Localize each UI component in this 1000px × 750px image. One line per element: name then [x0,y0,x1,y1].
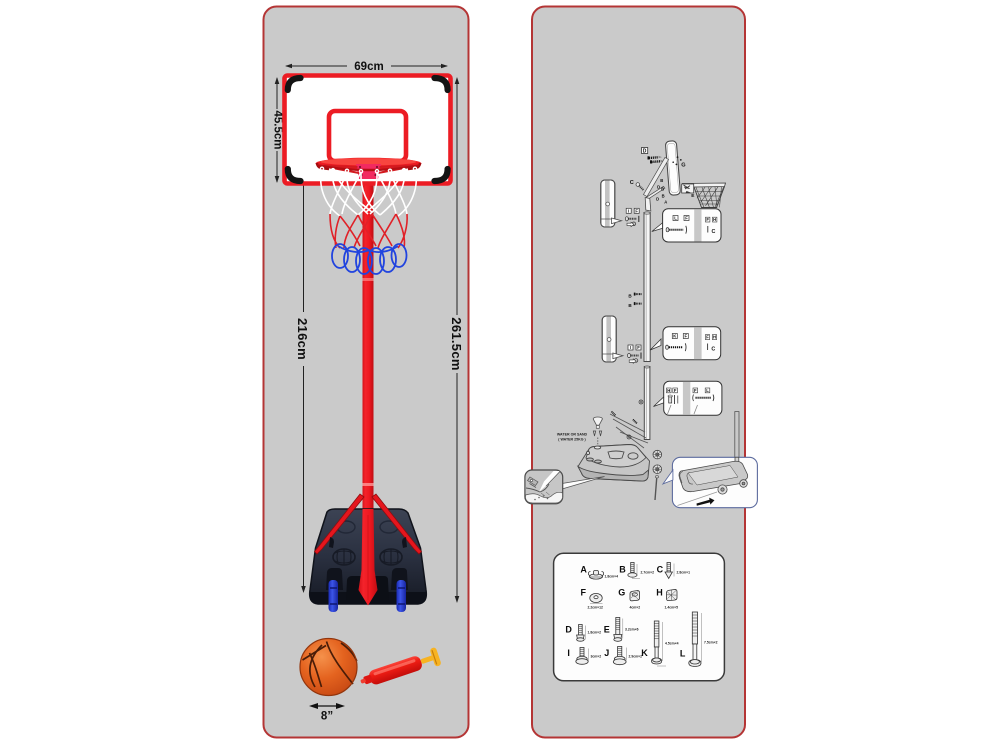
svg-text:L: L [674,216,677,221]
svg-text:261.5cm: 261.5cm [449,317,464,370]
svg-text:C: C [711,346,715,352]
svg-text:G: G [681,163,685,169]
svg-text:F: F [637,345,640,350]
svg-text:3cm×2: 3cm×2 [591,655,602,659]
svg-text:4.5cm×4: 4.5cm×4 [665,642,679,646]
svg-text:H: H [667,388,670,393]
svg-text:H: H [713,217,716,222]
svg-text:1.4cm×5: 1.4cm×5 [665,606,679,610]
svg-text:2.2cm×12: 2.2cm×12 [588,606,603,610]
svg-text:L: L [706,388,709,393]
svg-text:WATER OR SAND: WATER OR SAND [557,433,588,437]
svg-text:C: C [657,565,664,575]
svg-text:1.8cm×4: 1.8cm×4 [605,575,619,579]
svg-text:B: B [661,187,664,192]
svg-text:B: B [619,565,626,575]
svg-text:( WATER 25KG ): ( WATER 25KG ) [558,438,586,442]
svg-text:1.8cm×2: 1.8cm×2 [588,631,602,635]
svg-text:E: E [604,625,610,635]
svg-text:F: F [674,388,677,393]
svg-text:2.7cm×2: 2.7cm×2 [641,571,655,575]
svg-text:2.8cm×1: 2.8cm×1 [677,571,691,575]
svg-text:69cm: 69cm [354,61,383,73]
svg-text:D: D [657,184,660,189]
svg-text:J: J [604,648,609,658]
svg-text:H: H [713,335,716,340]
svg-text:A: A [664,199,667,204]
svg-text:A: A [580,565,587,575]
svg-text:7.5cm×2: 7.5cm×2 [704,641,718,645]
svg-text:C: C [712,229,716,235]
svg-text:2.9cm×2: 2.9cm×2 [629,655,643,659]
svg-text:F: F [706,217,709,222]
svg-text:4cm×2: 4cm×2 [630,606,641,610]
svg-text:L: L [680,649,686,659]
svg-text:F: F [581,588,587,598]
svg-text:G: G [618,588,625,598]
svg-text:I: I [630,345,631,350]
svg-text:45.5cm: 45.5cm [271,110,283,149]
svg-text:B: B [662,194,665,199]
svg-text:B: B [660,178,663,183]
svg-text:K: K [673,334,676,339]
svg-text:D: D [643,149,647,155]
svg-text:I: I [628,209,629,214]
svg-text:D: D [565,625,572,635]
svg-text:K: K [641,648,648,658]
svg-text:216cm: 216cm [295,318,310,360]
svg-text:F: F [685,334,688,339]
svg-text:F: F [706,335,709,340]
svg-text:I: I [567,648,570,658]
svg-text:H: H [656,588,663,598]
svg-text:C: C [630,180,634,186]
svg-text:F: F [685,216,688,221]
svg-text:D: D [656,196,659,201]
svg-text:F: F [694,388,697,393]
svg-text:F: F [635,209,638,214]
svg-text:8”: 8” [321,711,333,723]
svg-text:3.2cm×6: 3.2cm×6 [625,628,639,632]
